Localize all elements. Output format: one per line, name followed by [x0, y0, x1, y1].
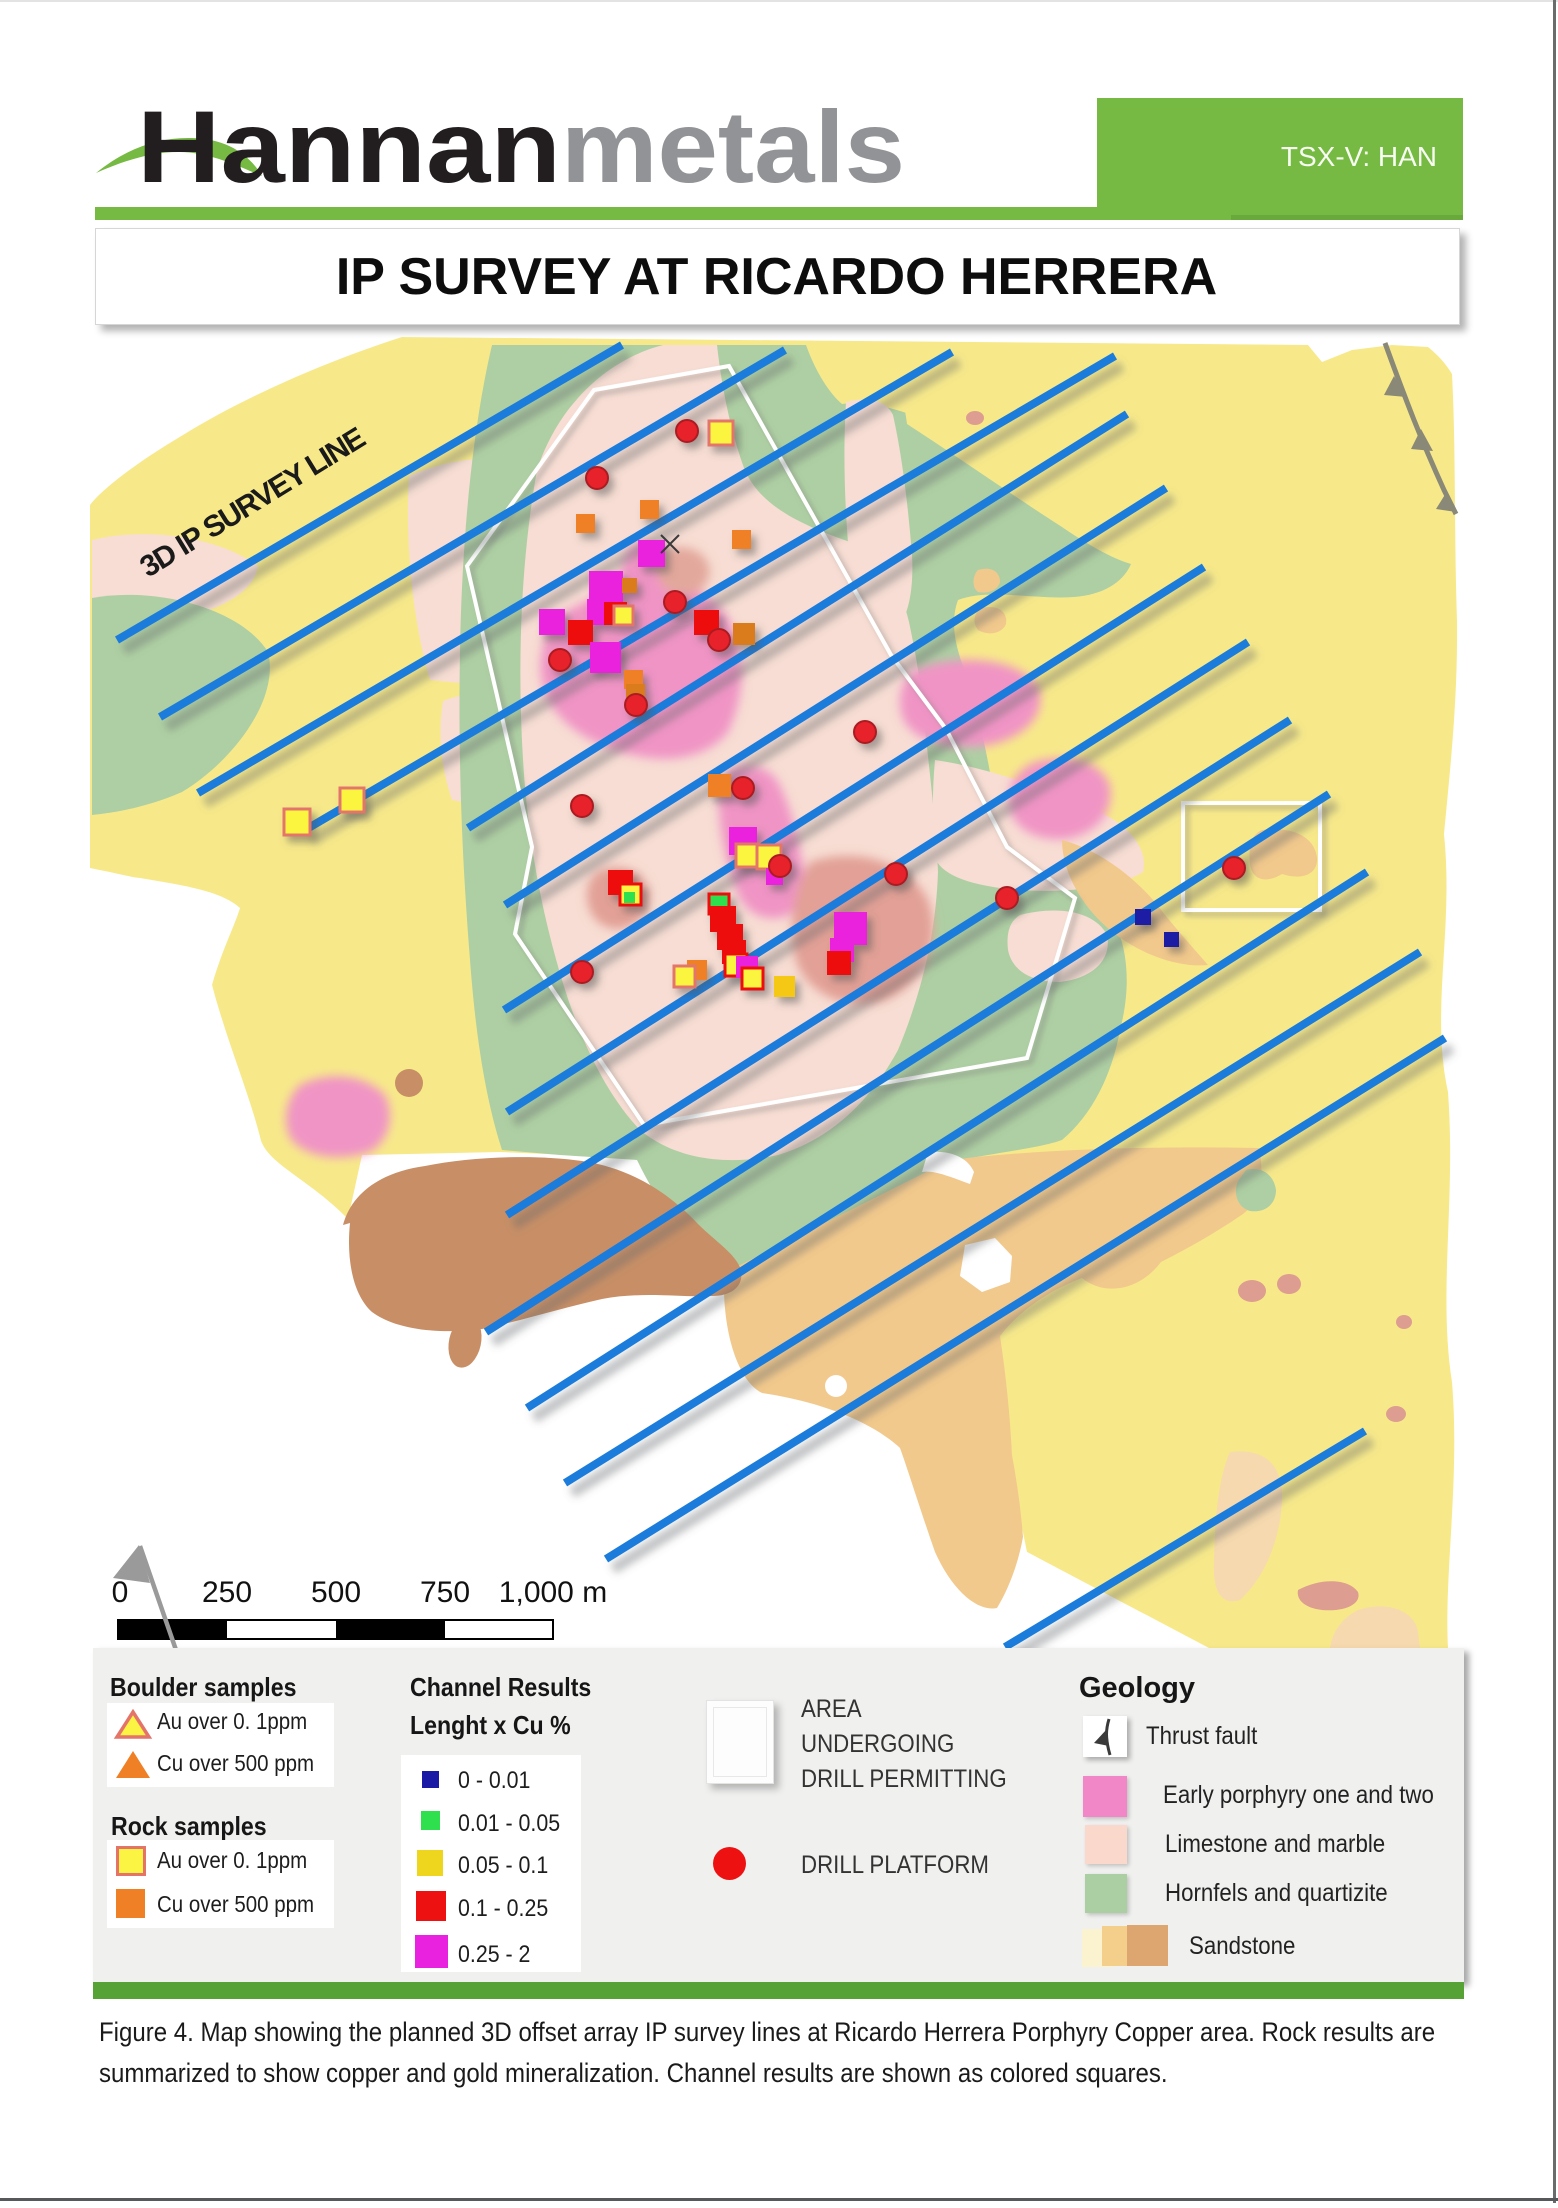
svg-text:0: 0: [112, 1576, 129, 1609]
svg-text:500: 500: [311, 1576, 361, 1609]
svg-text:1,000 m: 1,000 m: [499, 1576, 607, 1609]
svg-text:250: 250: [202, 1576, 252, 1609]
svg-text:750: 750: [420, 1576, 470, 1609]
